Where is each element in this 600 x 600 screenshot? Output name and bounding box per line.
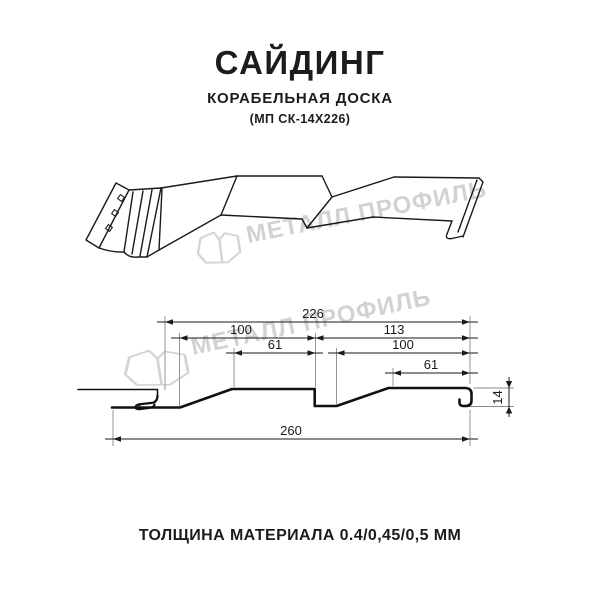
nail-flange-line xyxy=(78,390,158,399)
metal-profil-logo-icon xyxy=(125,351,188,385)
dim-14 xyxy=(506,377,512,417)
product-diagram-page: САЙДИНГ КОРАБЕЛЬНАЯ ДОСКА (МП СК-14Х226)… xyxy=(0,0,600,600)
dim-label-100-left: 100 xyxy=(230,322,252,337)
nail-strip xyxy=(86,183,129,248)
dim-label-100-right: 100 xyxy=(392,337,414,352)
dim-label-113: 113 xyxy=(384,322,405,337)
dim-label-61-left: 61 xyxy=(268,337,282,352)
dim-label-14: 14 xyxy=(490,390,505,404)
main-profile xyxy=(112,388,472,408)
nail-strip-holes xyxy=(106,195,125,232)
watermark-1: МЕТАЛЛ ПРОФИЛЬ xyxy=(198,176,489,263)
first-slope-face xyxy=(147,176,237,257)
material-thickness-note: ТОЛЩИНА МАТЕРИАЛА 0.4/0,45/0,5 ММ xyxy=(0,527,600,545)
profile-outline xyxy=(78,388,472,409)
dim-label-260: 260 xyxy=(280,423,302,438)
dim-label-226: 226 xyxy=(302,306,324,321)
metal-profil-logo-icon xyxy=(198,232,240,262)
dimension-lines xyxy=(105,319,512,442)
diagram-canvas: МЕТАЛЛ ПРОФИЛЬ xyxy=(0,0,600,600)
dim-label-61-right: 61 xyxy=(424,357,438,372)
